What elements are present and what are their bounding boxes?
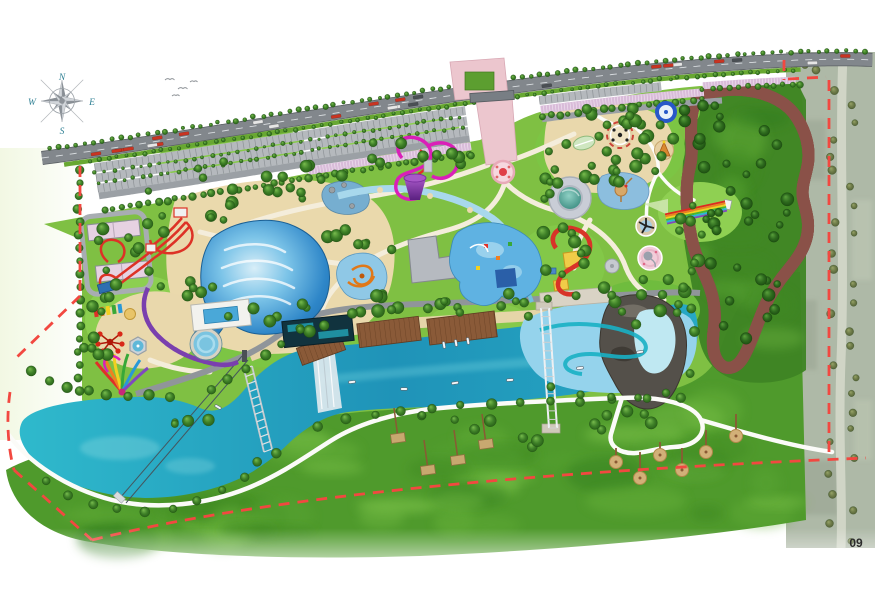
water-park-master-plan-page: N E S W 09 (0, 0, 875, 614)
pool-house (191, 299, 251, 331)
entrance-median (465, 72, 494, 90)
aerial-road (840, 54, 843, 548)
round-pool (190, 328, 222, 360)
bottom-fade (0, 528, 875, 598)
compass-e-label: E (88, 98, 95, 108)
outside-left-area (0, 148, 84, 440)
ring-pad (657, 103, 675, 121)
grotto-pool (322, 181, 370, 214)
compass-rose: N E S W (28, 73, 95, 137)
elephant-pad (638, 246, 662, 270)
birds (165, 79, 198, 96)
pinwheel-pad (636, 216, 656, 236)
page-number: 09 (849, 536, 863, 550)
compass-s-label: S (60, 127, 65, 137)
fountain-pool (130, 337, 146, 355)
entrance-fountain (492, 161, 514, 183)
master-plan-canvas: N E S W 09 (0, 0, 875, 614)
compass-w-label: W (28, 98, 37, 108)
annotations: N E S W (28, 73, 197, 137)
